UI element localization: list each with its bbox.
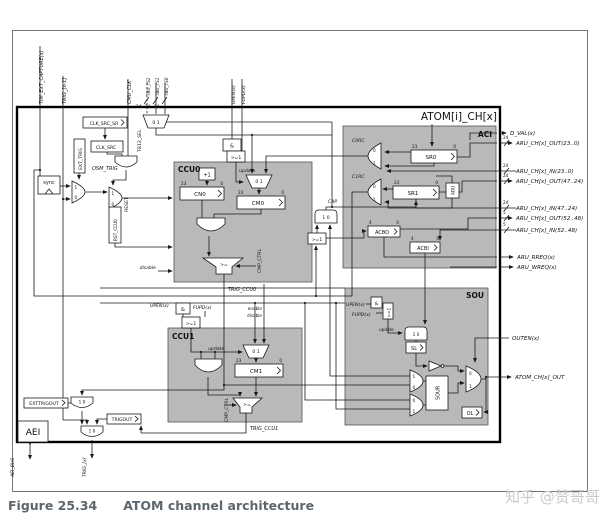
disable-label: disable (140, 265, 157, 271)
figure-number: Figure 25.34 (8, 498, 97, 513)
fupd-ccu1-label: FUPD(x) (193, 305, 212, 311)
c0rc-label: C0RC (352, 138, 365, 144)
mux-1: 1 (373, 161, 376, 166)
cmp-ctrl-label: CMP_CTRL (224, 398, 230, 422)
bit-0: 0 (436, 236, 439, 241)
outen-port: OUTEN(x) (512, 336, 539, 342)
trig-ccu0-label: TRIG_CCU0 (228, 287, 256, 293)
bit-0: 0 (281, 190, 284, 195)
bit-0: 0 (220, 181, 223, 186)
bit-4: 4 (411, 236, 414, 241)
w24: 24 (503, 200, 509, 205)
w5: 5 (503, 210, 506, 215)
atom-channel-diagram: 0 1 CLK_SRC_SR CLK_SRC EXT_TRIG sync 1 0… (0, 0, 600, 521)
fupd-sou-label: FUPD(x) (352, 312, 371, 318)
ext-trig-label: EXT_TRIG (78, 148, 84, 170)
w5: 5 (503, 222, 506, 227)
rst-ccu0-label: RST_CCU0 (113, 219, 118, 241)
and-label: & (375, 301, 379, 307)
upen-input: UPEN(x) (231, 85, 237, 104)
mux-0: 0 (373, 148, 376, 153)
upen-sou-label: UPEN(x) (346, 302, 365, 308)
ge-label: >= (243, 402, 251, 408)
aei-label: AEI (26, 428, 41, 438)
cmp-ctrl-label: CMP_CTRL (257, 249, 263, 273)
sl-label: SL (411, 346, 417, 352)
or-label: >=1 (387, 307, 392, 317)
d-val-port: D_VAL(x) (510, 131, 535, 137)
trig-prev-input: TRIG_[x-1] (62, 78, 68, 104)
mux-1: 1 (75, 185, 78, 190)
cmu-clk-input: CMU_CLK (127, 80, 133, 104)
or-label: >=1 (186, 321, 197, 327)
cap-label: CAP (328, 199, 337, 205)
plus-one-label: +1 (203, 173, 210, 179)
and-label: & (181, 307, 185, 313)
mux-0: 0 (75, 195, 78, 200)
update-label: update (379, 327, 394, 332)
and-label: & (230, 144, 234, 150)
tbu-ts2-input: TBU_TS2 (146, 77, 151, 96)
mux-10: 1 0 (79, 400, 86, 405)
aci-title: ACI (478, 130, 492, 139)
bit-23: 23 (412, 144, 418, 149)
sync-label: sync (43, 180, 55, 186)
w24: 24 (503, 173, 509, 178)
or-label: >=1 (312, 237, 323, 243)
clk-or-gate (115, 156, 137, 167)
tim-ext-capture-input: TIM_EXT_CAPTURE(x) (39, 50, 45, 104)
w24: 24 (503, 163, 509, 168)
bit-0: 0 (396, 220, 399, 225)
update-label: update (239, 168, 255, 174)
bus-width-24: 24 (154, 104, 160, 109)
mux-10: 1 0 (322, 215, 329, 221)
aru-out-23-0-port: ARU_CH[x]_OUT(23..0) (515, 141, 580, 147)
cm0-label: CM0 (252, 201, 265, 207)
or-label: >=1 (231, 155, 242, 161)
acbo-label: ACBO (375, 230, 389, 236)
sour-label: SOUR (436, 385, 442, 400)
mux-0: 0 (469, 371, 472, 376)
watermark: 知乎 @赞哥哥 (505, 486, 600, 507)
trig-next-port: TRIG_[x] (82, 457, 88, 477)
bit-23: 23 (238, 190, 244, 195)
bit-0: 0 (435, 180, 438, 185)
mux-1: 1 (413, 409, 416, 414)
exttrigout-label: EXTTRIGOUT (29, 401, 59, 407)
inverter-bubble (441, 365, 444, 368)
aru-in-52-48-port: ARU_CH[x]_IN(52..48) (515, 228, 577, 234)
osm-trig-label: OSM_TRIG (92, 166, 118, 172)
figure-caption: Figure 25.34ATOM channel architecture (8, 498, 314, 513)
tbu-ts1-input: TBU_TS1 (155, 77, 160, 96)
bit-0: 0 (279, 358, 282, 363)
mux-0: 0 (413, 398, 416, 403)
bus-width-24: 24 (145, 104, 151, 109)
channel-title: ATOM[i]_CH[x] (421, 111, 497, 123)
ccu1-title: CCU1 (172, 332, 194, 341)
mux-10: 1 0 (89, 429, 96, 434)
tbu-mux-label: 0 1 (152, 120, 159, 126)
adu-label: ADU (451, 186, 456, 195)
tb12-sel-label: TB12_SEL (137, 129, 143, 153)
enable-label: enable (248, 306, 263, 311)
acbi-label: ACBI (417, 246, 429, 252)
mux-0: 0 (112, 202, 115, 207)
trigout-label: TRIGOUT (111, 417, 133, 423)
tbu-ts0-input: TBU_TS0 (164, 77, 169, 96)
ol-label: OL (467, 411, 474, 417)
aru-out-52-48-port: ARU_CH[x]_OUT(52..48) (515, 216, 583, 222)
mux-1: 1 (469, 384, 472, 389)
aru-out-47-24-port: ARU_CH[x]_OUT(47..24) (515, 179, 583, 185)
bus-width-24: 24 (136, 104, 142, 109)
bit-23: 23 (394, 180, 400, 185)
disable-label: disable (247, 313, 262, 318)
upen-ccu1-label: UPEN(x) (150, 303, 169, 309)
cm1-label: CM1 (250, 369, 263, 375)
clk-src-sr-label: CLK_SRC_SR (90, 121, 119, 127)
aru-in-23-0-port: ARU_CH[x]_IN(23..0) (515, 169, 574, 175)
ge-label: >= (220, 262, 228, 268)
mux-1: 1 (112, 191, 115, 196)
sou-title: SOU (466, 291, 484, 300)
mux-10: 1 0 (413, 332, 420, 337)
aru-rreq-port: ARU_RREQ(x) (516, 255, 555, 261)
update-label: update (208, 346, 224, 352)
trig-ccu1-label: TRIG_CCU1 (250, 426, 278, 432)
mux-1: 1 (413, 374, 416, 379)
c1rc-label: C1RC (352, 174, 365, 180)
mux-0: 0 (373, 184, 376, 189)
mux-1: 1 (373, 197, 376, 202)
mux-01: 0 1 (252, 349, 259, 355)
figure-page: 0 1 CLK_SRC_SR CLK_SRC EXT_TRIG sync 1 0… (0, 0, 600, 521)
mux-01: 0 1 (255, 179, 262, 185)
cn0-label: CN0 (194, 192, 206, 198)
sr1-label: SR1 (408, 191, 419, 197)
bit-23: 23 (181, 181, 187, 186)
reset-label: RESET (124, 197, 130, 212)
figure-title: ATOM channel architecture (123, 498, 314, 513)
clk-src-label: CLK_SRC (96, 145, 116, 151)
fupd-input: FUPD(x) (241, 85, 247, 104)
aei-bus-port: AEI_BUS (10, 458, 16, 478)
ccu0-title: CCU0 (178, 165, 200, 174)
bit-4: 4 (369, 220, 372, 225)
mux-0: 0 (413, 385, 416, 390)
w24: 24 (503, 135, 509, 140)
atom-out-port: ATOM_CH[x]_OUT (514, 375, 565, 381)
ccu0-block (174, 162, 312, 282)
aru-in-47-24-port: ARU_CH[x]_IN(47..24) (515, 206, 577, 212)
aru-wreq-port: ARU_WREQ(x) (516, 265, 557, 271)
bit-0: 0 (453, 144, 456, 149)
bit-23: 23 (236, 358, 242, 363)
sr0-label: SR0 (426, 155, 437, 161)
